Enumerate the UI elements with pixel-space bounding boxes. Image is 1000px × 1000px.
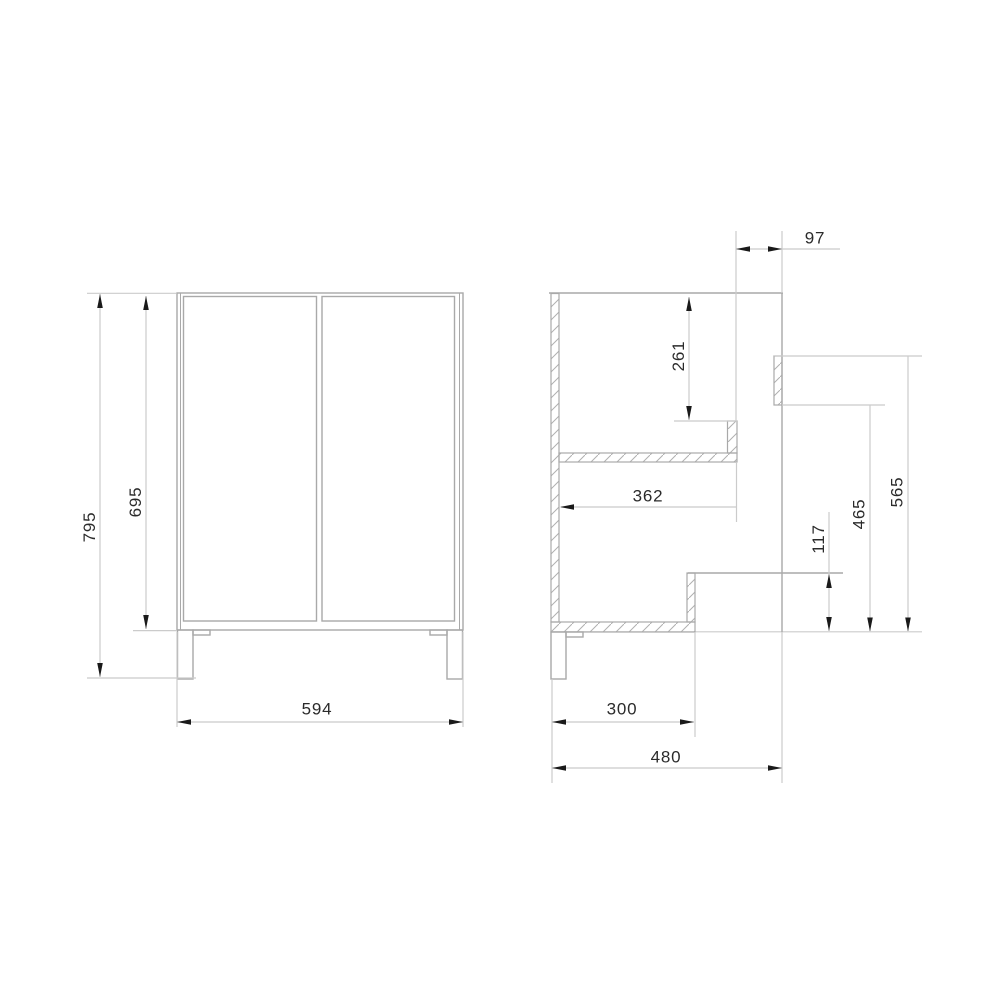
arrow-left xyxy=(552,719,566,725)
front-left-door xyxy=(184,297,317,622)
front-left-foot xyxy=(178,630,194,679)
arrow-right xyxy=(449,719,463,725)
arrow-down xyxy=(97,663,103,677)
front-overall-height-label: 795 xyxy=(80,512,99,543)
side-lower-rail-section xyxy=(687,573,695,622)
side-shelf-depth-label: 362 xyxy=(633,487,664,506)
front-body-height-label: 695 xyxy=(126,487,145,518)
arrow-right xyxy=(768,765,782,771)
side-overall-depth-label: 480 xyxy=(651,748,682,767)
front-left-foot-bracket xyxy=(193,630,210,635)
arrow-down xyxy=(686,406,692,420)
arrow-up xyxy=(826,574,832,588)
front-cabinet-outline xyxy=(177,293,463,630)
dim-overall-height: 795 xyxy=(80,294,103,677)
dim-bottom-depth: 300 xyxy=(552,700,694,725)
side-front-rail-section xyxy=(728,421,738,453)
front-right-door xyxy=(322,297,455,622)
side-bottom-depth-label: 300 xyxy=(607,700,638,719)
cabinet-dimension-drawing: 795 695 594 xyxy=(0,0,1000,1000)
dim-height-to-rail-top: 565 xyxy=(888,356,911,632)
front-right-foot-bracket xyxy=(430,630,447,635)
arrow-up xyxy=(686,297,692,311)
dim-top-inset: 97 xyxy=(736,229,840,252)
front-width-label: 594 xyxy=(302,700,333,719)
arrow-down xyxy=(143,615,149,629)
side-height-to-rail-top-label: 565 xyxy=(888,477,907,508)
arrow-up xyxy=(97,294,103,308)
dim-front-recess-height: 117 xyxy=(809,512,832,631)
dim-shelf-depth: 362 xyxy=(560,487,736,510)
side-top-inset-label: 97 xyxy=(805,229,826,248)
dim-width: 594 xyxy=(177,700,463,725)
technical-drawing-page: 795 695 594 xyxy=(0,0,1000,1000)
front-view-dimensions: 795 695 594 xyxy=(80,293,463,727)
side-back-panel-section xyxy=(551,294,559,623)
arrow-left xyxy=(560,504,574,510)
arrow-left xyxy=(552,765,566,771)
side-mounting-rail-section xyxy=(774,356,782,405)
dim-body-height: 695 xyxy=(126,296,149,629)
dim-overall-depth: 480 xyxy=(552,748,782,771)
dim-upper-depth: 261 xyxy=(669,297,692,420)
arrow-up xyxy=(143,296,149,310)
side-foot xyxy=(551,632,566,679)
side-shelf-section xyxy=(559,453,737,462)
side-view-dimensions: 97 261 362 117 465 xyxy=(552,229,911,784)
arrow-down xyxy=(867,618,873,632)
side-foot-bracket xyxy=(566,632,583,637)
arrow-right xyxy=(680,719,694,725)
side-bottom-panel-section xyxy=(551,622,695,632)
front-view xyxy=(177,293,463,679)
arrow-left xyxy=(736,246,750,252)
dim-height-to-rail-bottom: 465 xyxy=(850,405,873,632)
front-right-foot xyxy=(447,630,463,679)
arrow-left xyxy=(177,719,191,725)
arrow-down xyxy=(905,618,911,632)
arrow-down xyxy=(826,617,832,631)
side-height-to-rail-bottom-label: 465 xyxy=(850,499,869,530)
arrow-right xyxy=(768,246,782,252)
side-front-recess-height-label: 117 xyxy=(809,524,828,554)
side-upper-depth-label: 261 xyxy=(669,341,688,372)
